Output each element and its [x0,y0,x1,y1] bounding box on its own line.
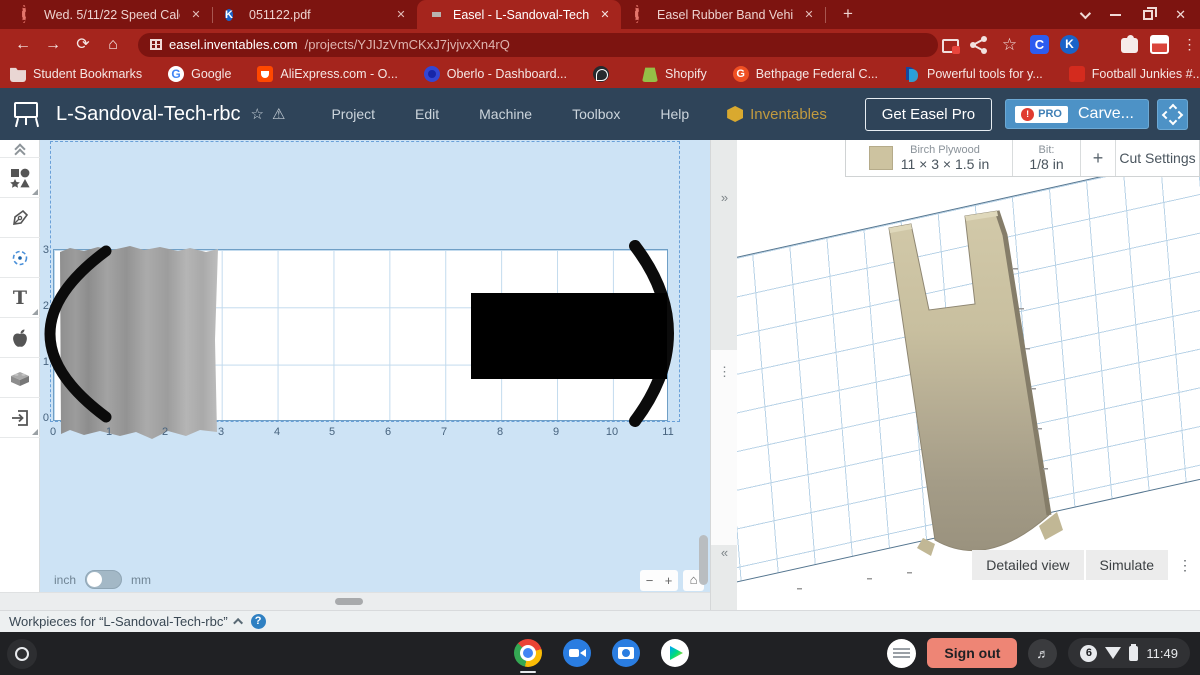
zoom-out-button[interactable]: − [640,570,659,591]
home-button[interactable]: ⌂ [100,32,126,58]
reload-button[interactable]: ⟳ [70,32,96,58]
pen-icon [10,208,30,228]
bit-value: 1/8 in [1029,156,1063,172]
bookmark-student-bookmarks[interactable]: Student Bookmarks [10,66,142,82]
simulate-button[interactable]: Simulate [1086,550,1168,580]
panel-divider: » ⋮ « [710,140,737,610]
pro-badge: ! PRO [1015,106,1068,123]
text-icon: T [13,287,27,309]
preview-board [737,140,1200,610]
panel-expand-handle[interactable]: » [711,190,738,205]
shapes-tool[interactable] [0,158,40,198]
cast-icon[interactable] [942,39,959,53]
preview-menu-icon[interactable]: ⋮ [1178,557,1192,574]
preview-buttons: Detailed view Simulate ⋮ [972,550,1192,580]
chevrons-up-icon [16,145,24,153]
easel-logo-icon[interactable] [12,99,42,129]
account-avatar[interactable] [887,639,916,668]
black-rectangle-shape [471,293,667,379]
projects-tool[interactable] [0,358,40,398]
import-icon [10,408,30,428]
easel-screen-icon [429,7,445,23]
browser-menu-icon[interactable]: ⋮ [1180,35,1199,54]
chrome-active-indicator [520,671,536,673]
ruler-x-2: 2 [162,426,168,438]
media-controls-icon[interactable]: ♬ [1028,639,1057,668]
shopify-icon [642,66,658,82]
notification-count-badge: 6 [1080,645,1097,662]
unit-toggle-switch[interactable] [85,570,122,589]
zoom-in-button[interactable]: + [659,570,678,591]
window-close-button[interactable]: ✕ [1175,0,1186,29]
zoom-controls: − + [640,570,678,591]
url-path: /projects/YJIJzVmCKxJ7jvjvxXn4rQ [305,37,510,52]
sign-out-button[interactable]: Sign out [927,638,1017,668]
bookmark-star-icon[interactable]: ☆ [1000,35,1019,54]
tab-strip: Wed. 5/11/22 Speed Calculation ✕ K 05112… [0,0,1200,29]
workpieces-label: Workpieces for “L-Sandoval-Tech-rbc” [9,614,228,629]
material-section[interactable]: Birch Plywood 11 × 3 × 1.5 in [846,140,1013,176]
bookmark-google[interactable]: GGoogle [168,66,231,82]
ruler-x-1: 1 [106,426,112,438]
ruler-x-3: 3 [218,426,224,438]
camera-app-icon[interactable] [612,639,640,667]
ruler-y-3: 3 [40,244,49,256]
import-tool[interactable] [0,398,40,438]
panel-collapse-handle[interactable]: « [711,545,738,560]
browser-tab-rubber-band[interactable]: Easel Rubber Band Vehicle ✕ [621,0,825,29]
ruler-y-0: 0 [40,412,49,424]
new-tab-button[interactable]: + [834,1,862,29]
ruler-x-4: 4 [274,426,280,438]
tab-label: Wed. 5/11/22 Speed Calculation [44,8,180,22]
paypal-icon [904,66,920,82]
fullscreen-expand-button[interactable] [1157,99,1188,130]
status-tray[interactable]: 6 11:49 [1068,638,1190,668]
inventables-brand[interactable]: Inventables [727,106,827,123]
shapes-icon [10,168,30,188]
board-top-surface [889,211,1049,551]
bookmark-football-junkies[interactable]: Football Junkies #... [1069,66,1200,82]
bookmark-bethpage[interactable]: GBethpage Federal C... [733,66,878,82]
material-swatch [869,146,893,170]
add-bit-button[interactable]: + [1081,140,1116,176]
brick-icon [9,368,31,388]
bookmark-oberlo[interactable]: Oberlo - Dashboard... [424,66,567,82]
unit-mm-label: mm [131,573,151,587]
ruler-x-5: 5 [329,426,335,438]
loading-icon [20,7,36,23]
shelf-apps [514,639,689,667]
bit-section[interactable]: Bit: 1/8 in [1013,140,1081,176]
menu-project[interactable]: Project [331,106,375,122]
menu-toolbox[interactable]: Toolbox [572,106,620,122]
material-dimensions: 11 × 3 × 1.5 in [901,156,989,172]
chromeos-shelf: Sign out ♬ 6 11:49 [0,632,1200,675]
aliexpress-icon [257,66,273,82]
window-controls: ✕ [1080,0,1200,29]
drill-origin-tool[interactable] [0,238,40,278]
forward-button[interactable]: → [40,32,66,58]
canvas-vertical-scrollbar[interactable] [699,535,708,585]
kami-icon: K [225,7,241,23]
workpieces-bar: Workpieces for “L-Sandoval-Tech-rbc” ? [0,610,1200,632]
wifi-icon [1105,647,1121,659]
preview-3d-pane[interactable]: Birch Plywood 11 × 3 × 1.5 in Bit: 1/8 i… [737,140,1200,610]
toolbar-actions: ☆ C K ⋮ [942,35,1200,54]
meet-app-icon[interactable] [563,639,591,667]
bethpage-icon: G [733,66,749,82]
design-shapes[interactable] [40,140,710,592]
launcher-button[interactable] [7,639,37,669]
window-minimize-button[interactable] [1110,14,1121,16]
browser-tab-pdf[interactable]: K 051122.pdf ✕ [213,0,417,29]
design-canvas[interactable]: 0 1 2 3 4 5 6 7 8 9 10 11 3 2 1 0 inch m… [40,140,710,592]
back-button[interactable]: ← [10,32,36,58]
tab-close-button[interactable]: ✕ [188,7,204,23]
inventables-hexagon-icon [727,106,743,122]
tab-close-button[interactable]: ✕ [801,7,817,23]
google-icon: G [168,66,184,82]
carve-button[interactable]: ! PRO Carve... [1005,99,1149,129]
main-area: T [0,140,1200,610]
easel-header: L-Sandoval-Tech-rbc ☆ ⚠ Project Edit Mac… [0,88,1200,140]
warning-icon[interactable]: ⚠ [272,105,285,123]
trash-extension-icon[interactable] [1090,35,1109,54]
ruler-x-9: 9 [553,426,559,438]
pro-alert-icon: ! [1021,108,1034,121]
profile-avatar[interactable] [1150,35,1169,54]
site-icon [150,39,162,50]
tab-close-button[interactable]: ✕ [597,7,613,23]
browser-tab-speed-calculation[interactable]: Wed. 5/11/22 Speed Calculation ✕ [8,0,212,29]
ruler-y-1: 1 [40,356,49,368]
tab-divider [825,7,826,23]
favorite-star-icon[interactable]: ☆ [251,105,264,123]
unit-toggle-group: inch mm [54,570,151,589]
folder-icon [10,66,26,82]
corner-offcut [917,538,935,556]
football-icon [1069,66,1085,82]
help-icon[interactable]: ? [251,614,266,629]
menu-machine[interactable]: Machine [479,106,532,122]
text-tool[interactable]: T [0,278,40,318]
detailed-view-button[interactable]: Detailed view [972,550,1083,580]
cut-settings-button[interactable]: Cut Settings [1116,140,1199,176]
loading-icon [633,7,649,23]
design-library-tool[interactable] [0,318,40,358]
toggle-knob [87,572,102,587]
origin-crosshair-icon [9,247,31,269]
unit-inch-label: inch [54,573,76,587]
globe-icon [593,66,609,82]
oberlo-icon [424,66,440,82]
ruler-x-7: 7 [441,426,447,438]
bookmark-paypal[interactable]: Powerful tools for y... [904,66,1043,82]
browser-tab-easel-active[interactable]: Easel - L-Sandoval-Tech-rbc ✕ [417,0,621,29]
window-restore-button[interactable] [1143,10,1153,20]
shelf-status-area: Sign out ♬ 6 11:49 [887,638,1190,668]
apple-icon [10,328,30,348]
kami-extension-icon[interactable]: K [1060,35,1079,54]
panel-drag-handle[interactable]: ⋮ [711,364,738,380]
clever-extension-icon[interactable]: C [1030,35,1049,54]
screen: Wed. 5/11/22 Speed Calculation ✕ K 05112… [0,0,1200,675]
ruler-x-8: 8 [497,426,503,438]
chrome-app-icon[interactable] [514,639,542,667]
extensions-puzzle-icon[interactable] [1120,35,1139,54]
bit-label: Bit: [1039,144,1055,157]
workpieces-collapse-icon[interactable] [233,618,243,628]
tab-close-button[interactable]: ✕ [393,7,409,23]
tab-label: 051122.pdf [249,8,385,22]
menu-edit[interactable]: Edit [415,106,439,122]
pen-tool[interactable] [0,198,40,238]
play-store-app-icon[interactable] [661,639,689,667]
canvas-horizontal-scrollbar[interactable] [0,592,710,610]
material-panel: Birch Plywood 11 × 3 × 1.5 in Bit: 1/8 i… [845,140,1200,177]
ruler-x-0: 0 [50,426,56,438]
design-toolbar: T [0,140,40,592]
share-icon[interactable] [970,35,989,54]
bookmark-aliexpress[interactable]: AliExpress.com - O... [257,66,397,82]
battery-icon [1129,646,1138,661]
menu-help[interactable]: Help [660,106,689,122]
ruler-y-2: 2 [40,300,49,312]
bookmark-globe[interactable] [593,66,616,82]
material-name: Birch Plywood [910,144,980,157]
clock: 11:49 [1146,646,1178,661]
bookmark-shopify[interactable]: Shopify [642,66,707,82]
project-title[interactable]: L-Sandoval-Tech-rbc [56,103,241,126]
scrollbar-thumb[interactable] [335,598,363,605]
bookmarks-bar: Student Bookmarks GGoogle AliExpress.com… [0,60,1200,88]
address-bar[interactable]: easel.inventables.com/projects/YJIJzVmCK… [138,33,938,57]
browser-toolbar: ← → ⟳ ⌂ easel.inventables.com/projects/Y… [0,29,1200,60]
chevron-down-icon[interactable] [1080,7,1091,18]
ruler-x-11: 11 [662,426,673,438]
ruler-x-10: 10 [606,426,618,438]
tab-label: Easel - L-Sandoval-Tech-rbc [453,8,589,22]
toolbar-collapse-button[interactable] [0,140,40,158]
ruler-x-6: 6 [385,426,391,438]
tab-label: Easel Rubber Band Vehicle [657,8,793,22]
get-easel-pro-button[interactable]: Get Easel Pro [865,98,992,131]
url-host: easel.inventables.com [169,37,298,52]
